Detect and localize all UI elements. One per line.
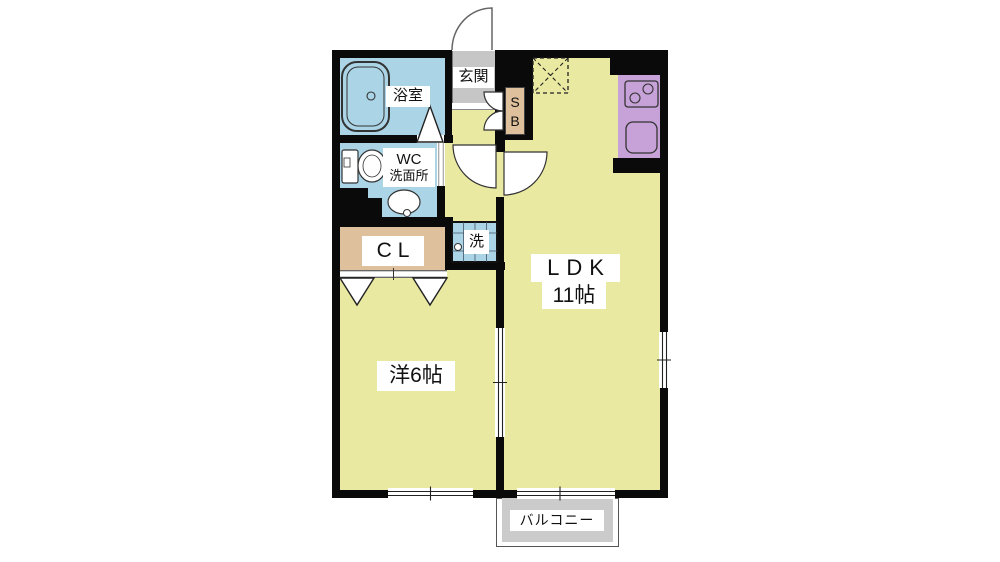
stove-burner-2	[630, 93, 640, 103]
bathtub-drain-icon	[367, 92, 375, 100]
shoe-box-door-lower	[484, 111, 503, 130]
floor-plan: 浴室 玄関 S B WC 洗面所 CL 洗 LDK 11帖 洋6帖 バルコニー	[0, 0, 1000, 562]
western-room-label: 洋6帖	[377, 361, 455, 391]
ldk-size-label: 11帖	[542, 282, 606, 309]
kitchen-sink-icon	[626, 122, 657, 153]
ldk-door-swing	[504, 152, 547, 195]
washroom-doorway	[437, 143, 445, 186]
shoe-box-label: S B	[505, 90, 525, 134]
balcony-label: バルコニー	[510, 510, 604, 531]
closet-door-right-triangle	[413, 278, 447, 305]
bathtub-inner	[347, 67, 384, 126]
laundry-label: 洗	[464, 230, 489, 254]
entrance-label: 玄関	[453, 67, 494, 88]
fixtures-layer	[0, 0, 1000, 562]
ldk-label: LDK	[531, 254, 620, 282]
closet-label: CL	[362, 236, 424, 266]
entrance-door-swing	[452, 8, 492, 50]
closet-door-left-triangle	[340, 278, 374, 305]
washroom-label: WC 洗面所	[383, 148, 435, 187]
washer-drain-icon	[455, 244, 462, 251]
stove-burner-1	[643, 84, 653, 94]
stove-icon	[625, 81, 658, 107]
washroom-label-line2: 洗面所	[389, 169, 428, 183]
washroom-door-swing	[453, 145, 496, 188]
shoe-box-door-upper	[484, 92, 503, 111]
balcony-window	[517, 488, 615, 499]
bathroom-door-triangle	[417, 106, 443, 142]
basin-drain-icon	[404, 210, 411, 217]
washroom-label-line1: WC	[397, 152, 422, 169]
bathroom-label: 浴室	[386, 86, 430, 107]
